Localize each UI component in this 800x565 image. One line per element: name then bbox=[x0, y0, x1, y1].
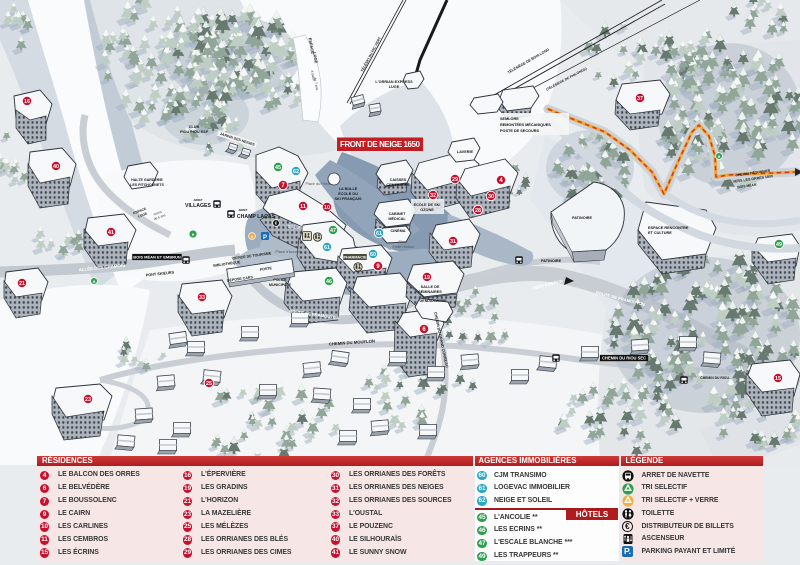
svg-text:61: 61 bbox=[376, 231, 382, 237]
svg-text:VILLAGES: VILLAGES bbox=[185, 203, 211, 209]
svg-text:SKI FRANÇAIS: SKI FRANÇAIS bbox=[334, 197, 361, 201]
svg-text:32: 32 bbox=[430, 193, 436, 199]
svg-text:37: 37 bbox=[637, 96, 643, 102]
svg-text:11: 11 bbox=[300, 204, 306, 210]
svg-text:16: 16 bbox=[24, 99, 30, 105]
svg-text:29: 29 bbox=[452, 177, 458, 183]
svg-text:46: 46 bbox=[326, 279, 332, 285]
svg-text:L'ORRIAN EXPRESS: L'ORRIAN EXPRESS bbox=[375, 80, 413, 84]
svg-text:10: 10 bbox=[324, 205, 330, 211]
svg-text:CENTRALES: CENTRALES bbox=[386, 183, 410, 187]
svg-text:62: 62 bbox=[293, 169, 299, 175]
svg-text:19: 19 bbox=[424, 275, 430, 281]
svg-text:31: 31 bbox=[450, 239, 456, 245]
svg-text:GENDARMERIE: GENDARMERIE bbox=[420, 299, 448, 303]
svg-text:61: 61 bbox=[324, 245, 330, 251]
svg-text:28: 28 bbox=[475, 208, 481, 214]
svg-text:40: 40 bbox=[53, 164, 59, 170]
svg-text:Émile Hodoul: Émile Hodoul bbox=[392, 244, 414, 249]
svg-text:FRONT DE NEIGE 1650: FRONT DE NEIGE 1650 bbox=[340, 140, 421, 149]
svg-text:SALLE DE: SALLE DE bbox=[421, 285, 440, 289]
svg-text:MUNICIPALE: MUNICIPALE bbox=[269, 283, 292, 287]
svg-text:CHEMIN DU RIOU...: CHEMIN DU RIOU... bbox=[700, 376, 732, 380]
svg-text:▲: ▲ bbox=[92, 279, 96, 284]
svg-text:HALTE GARDERIE: HALTE GARDERIE bbox=[131, 178, 163, 182]
svg-text:LA BULLE: LA BULLE bbox=[339, 187, 358, 191]
svg-text:25: 25 bbox=[206, 381, 212, 387]
svg-text:33: 33 bbox=[199, 295, 205, 301]
svg-text:47: 47 bbox=[330, 228, 336, 234]
svg-text:MÉDICAL: MÉDICAL bbox=[388, 216, 406, 221]
svg-text:REMONTÉES MÉCANIQUES: REMONTÉES MÉCANIQUES bbox=[500, 122, 551, 127]
svg-text:SÉMINAIRES: SÉMINAIRES bbox=[418, 289, 442, 294]
svg-text:CAISSES: CAISSES bbox=[390, 178, 407, 182]
svg-text:CABINET: CABINET bbox=[389, 212, 407, 216]
svg-text:41: 41 bbox=[108, 230, 114, 236]
svg-text:45: 45 bbox=[275, 165, 281, 171]
svg-text:SEMLORE: SEMLORE bbox=[500, 117, 519, 121]
svg-text:ÉCOLE DU: ÉCOLE DU bbox=[338, 191, 358, 196]
svg-text:POSTE DE SECOURS: POSTE DE SECOURS bbox=[500, 129, 539, 133]
svg-text:49: 49 bbox=[776, 242, 782, 248]
svg-text:LES PITCHOUNETS: LES PITCHOUNETS bbox=[130, 183, 164, 187]
svg-text:ESPACE RENCONTRE: ESPACE RENCONTRE bbox=[648, 226, 689, 230]
svg-text:PHARMACIE: PHARMACIE bbox=[344, 255, 367, 259]
svg-text:Place d'accueil: Place d'accueil bbox=[275, 250, 300, 254]
svg-text:PIOU PIOU ESF: PIOU PIOU ESF bbox=[180, 130, 209, 134]
svg-text:30: 30 bbox=[488, 194, 494, 200]
svg-text:ARRET: ARRET bbox=[194, 198, 203, 202]
svg-text:60: 60 bbox=[370, 252, 376, 258]
svg-text:BOIS MÉAN ET EMBRUN: BOIS MÉAN ET EMBRUN bbox=[133, 254, 181, 259]
svg-text:POLICE: POLICE bbox=[273, 278, 287, 282]
svg-text:OZONE: OZONE bbox=[420, 208, 434, 212]
svg-text:CHAMP LACAS: CHAMP LACAS bbox=[237, 214, 276, 220]
svg-text:CHEMIN DU RIOU SEC: CHEMIN DU RIOU SEC bbox=[602, 356, 646, 361]
svg-text:CINÉMA: CINÉMA bbox=[391, 228, 406, 233]
svg-text:▲: ▲ bbox=[250, 234, 254, 239]
svg-text:ÉCOLE DE SKI: ÉCOLE DE SKI bbox=[414, 202, 441, 207]
svg-text:15: 15 bbox=[775, 376, 781, 382]
svg-text:▲: ▲ bbox=[717, 154, 721, 159]
svg-text:P: P bbox=[263, 235, 267, 241]
svg-text:LUGE: LUGE bbox=[389, 85, 400, 89]
svg-text:CLUB: CLUB bbox=[189, 125, 200, 129]
svg-text:23: 23 bbox=[85, 397, 91, 403]
svg-text:21: 21 bbox=[19, 281, 25, 287]
svg-text:LAVERIE: LAVERIE bbox=[457, 150, 474, 154]
svg-text:PATINOIRE: PATINOIRE bbox=[572, 216, 593, 220]
svg-text:ET CULTURE: ET CULTURE bbox=[648, 231, 672, 235]
svg-text:▲: ▲ bbox=[191, 232, 195, 237]
svg-text:PATINOIRE: PATINOIRE bbox=[541, 259, 562, 263]
svg-text:Place: Place bbox=[399, 240, 408, 244]
svg-text:ARRET: ARRET bbox=[239, 208, 248, 212]
